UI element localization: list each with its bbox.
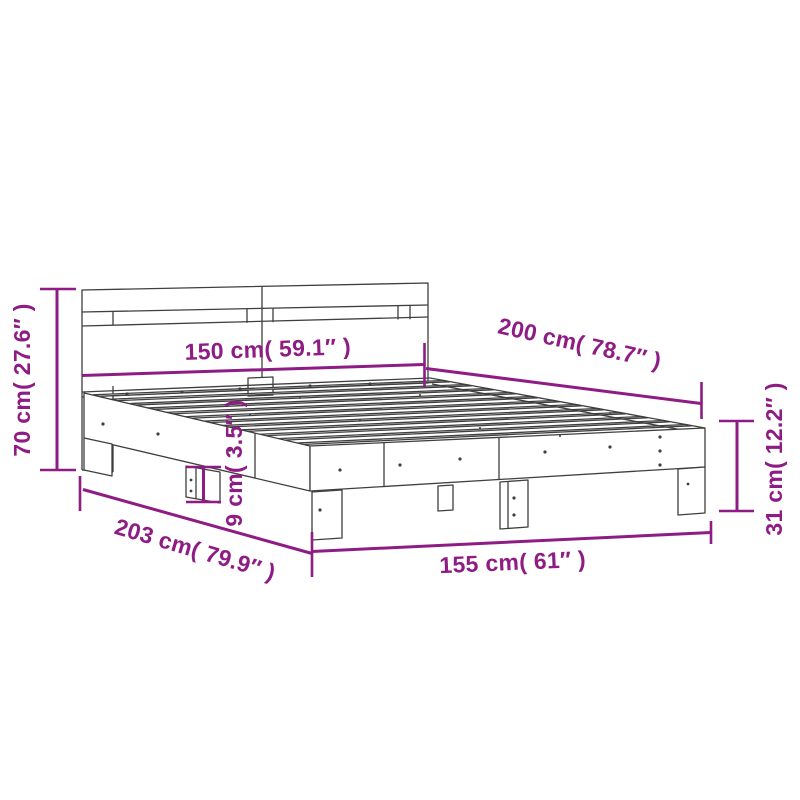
label-headboard-height: 70 cm( 27.6″ ) [9, 303, 35, 456]
label-base-width: 155 cm( 61″ ) [439, 546, 587, 578]
label-rail-height: 9 cm( 3.5″ ) [221, 399, 247, 526]
dim-foot-height [719, 421, 754, 511]
product-dimension-diagram: 150 cm( 59.1″ ) 200 cm( 78.7″ ) 70 cm( 2… [0, 0, 800, 800]
leg-foot-middle [500, 480, 528, 529]
bed-frame-drawing [82, 283, 705, 540]
label-foot-height: 31 cm( 12.2″ ) [761, 382, 787, 535]
leg-foot-small [438, 485, 453, 511]
leg-head-left [84, 438, 112, 476]
leg-front-corner [312, 490, 342, 540]
label-bed-length: 200 cm( 78.7″ ) [496, 312, 664, 373]
label-base-length: 203 cm( 79.9″ ) [112, 513, 279, 585]
bed-frame-diagram-svg: 150 cm( 59.1″ ) 200 cm( 78.7″ ) 70 cm( 2… [0, 0, 800, 800]
dim-headboard-height [40, 289, 76, 470]
leg-foot-right [678, 467, 705, 515]
